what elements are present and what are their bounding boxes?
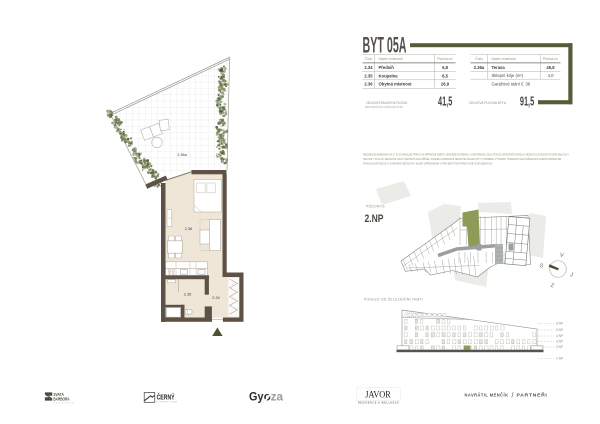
svg-text:Garážové stání č. 36: Garážové stání č. 36	[492, 81, 531, 86]
svg-text:Obytná místnost: Obytná místnost	[379, 82, 413, 87]
svg-text:JAVOR: JAVOR	[365, 391, 391, 401]
svg-text:4,0: 4,0	[548, 73, 554, 78]
svg-text:2.36a: 2.36a	[474, 65, 485, 70]
svg-text:45,8: 45,8	[546, 65, 555, 70]
svg-text:CELKOVÁ PODLAHOVÁ PLOCHA: CELKOVÁ PODLAHOVÁ PLOCHA	[366, 101, 407, 105]
svg-text:STAVEBNÍ FIRMA: STAVEBNÍ FIRMA	[157, 401, 178, 404]
svg-text:5.NP: 5.NP	[556, 328, 563, 332]
svg-text:PARTNEŘI: PARTNEŘI	[517, 391, 548, 398]
svg-text:2.NP: 2.NP	[365, 213, 384, 225]
svg-text:POHLED OD ŽELEZNIČNÍ TRATI: POHLED OD ŽELEZNIČNÍ TRATI	[364, 297, 423, 302]
svg-text:2.35: 2.35	[364, 73, 373, 78]
svg-text:za: za	[271, 392, 284, 404]
svg-text:Plocha m²: Plocha m²	[437, 57, 453, 61]
svg-text:6,5: 6,5	[442, 73, 448, 78]
svg-text:Číslo: Číslo	[365, 56, 373, 61]
svg-text:2.NP: 2.NP	[556, 345, 563, 349]
svg-text:Plocha m²: Plocha m²	[543, 57, 559, 61]
svg-text:REZIDENCE & WELLNESS: REZIDENCE & WELLNESS	[358, 400, 399, 404]
svg-text:4.NP: 4.NP	[556, 334, 563, 338]
svg-text:CELKOVÁ PLOCHA BYTU: CELKOVÁ PLOCHA BYTU	[469, 101, 506, 105]
svg-text:Terasa: Terasa	[492, 65, 506, 70]
svg-text:2.36: 2.36	[185, 227, 192, 231]
svg-text:91,5: 91,5	[520, 94, 534, 109]
svg-text:/: /	[512, 392, 514, 399]
svg-text:REZIDENCE: REZIDENCE	[53, 403, 74, 405]
svg-text:BYT 05A: BYT 05A	[363, 33, 407, 58]
svg-text:Koupelna: Koupelna	[379, 73, 399, 78]
svg-text:5,8: 5,8	[442, 65, 448, 70]
svg-text:6.NP: 6.NP	[556, 322, 563, 326]
svg-text:2.36a: 2.36a	[177, 153, 187, 157]
svg-text:2.36: 2.36	[364, 82, 373, 87]
svg-text:Sklepní kóje (m²): Sklepní kóje (m²)	[492, 73, 524, 78]
svg-text:41,5: 41,5	[438, 94, 452, 109]
svg-text:Gy: Gy	[249, 392, 264, 404]
svg-text:BARBORA: BARBORA	[53, 397, 70, 402]
svg-text:FINÁLNÍ DISPOZICE A VYBAVENÍ J: FINÁLNÍ DISPOZICE A VYBAVENÍ JEDNOTKY BU…	[363, 161, 493, 166]
svg-text:REZIDENCE BARBORA S.R.O. SI VY: REZIDENCE BARBORA S.R.O. SI VYHRAZUJE PR…	[363, 152, 569, 157]
svg-text:2.34: 2.34	[212, 296, 219, 300]
svg-text:ČERNÝ: ČERNÝ	[157, 393, 175, 402]
svg-text:Název místnosti: Název místnosti	[379, 57, 403, 61]
svg-text:Číslo: Číslo	[475, 56, 483, 61]
svg-text:2.35: 2.35	[184, 293, 191, 297]
svg-text:Předsíň: Předsíň	[379, 65, 395, 70]
svg-text:3.NP: 3.NP	[556, 340, 563, 344]
svg-text:SMLOUVY. PLOCHY JEDNOTEK JSOU: SMLOUVY. PLOCHY JEDNOTEK JSOU VČETNĚ PLO…	[363, 156, 561, 161]
svg-text:1.NP: 1.NP	[556, 357, 563, 361]
svg-text:Název místnosti: Název místnosti	[492, 57, 516, 61]
svg-text:26,9: 26,9	[441, 82, 450, 87]
svg-text:2.34: 2.34	[364, 65, 373, 70]
svg-text:NAVRÁTIL MENČÍK: NAVRÁTIL MENČÍK	[465, 391, 509, 398]
